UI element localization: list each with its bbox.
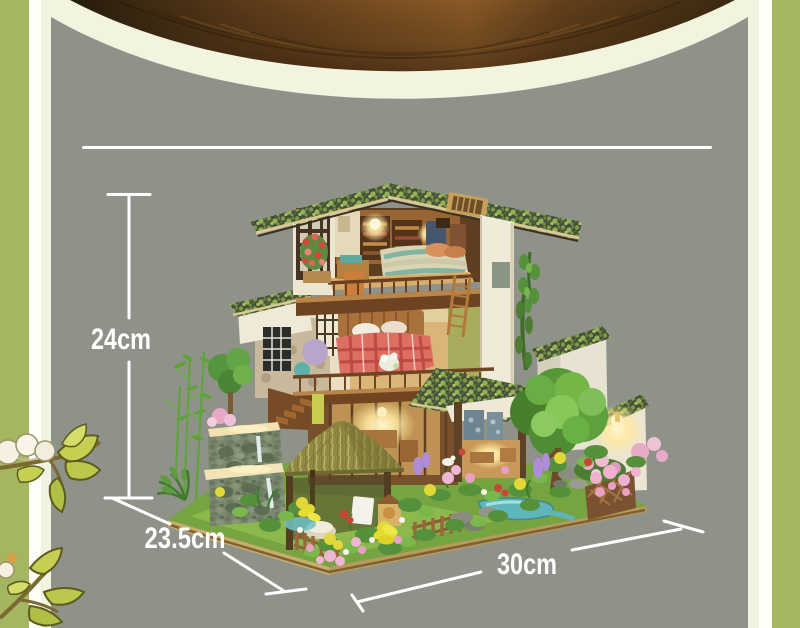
svg-text:30cm: 30cm bbox=[497, 548, 557, 581]
svg-text:24cm: 24cm bbox=[91, 323, 151, 356]
svg-text:23.5cm: 23.5cm bbox=[145, 522, 226, 555]
